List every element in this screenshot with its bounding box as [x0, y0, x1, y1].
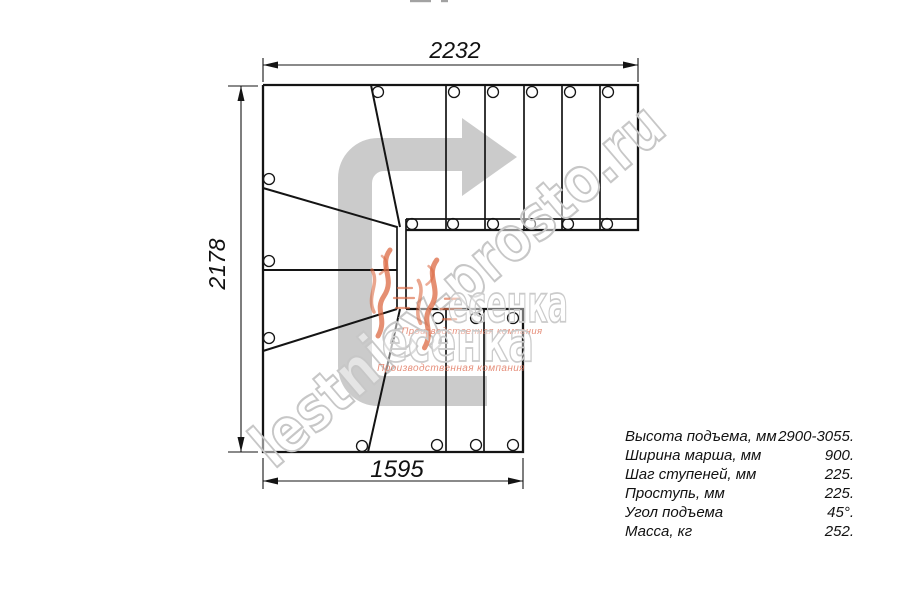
dim-arrow-left [263, 62, 278, 69]
spec-value: 45°. [827, 503, 854, 522]
spec-value: 900. [825, 446, 854, 465]
dim-arrow-right [508, 478, 523, 485]
stair-drawing-canvas: lestnicy-prosto.ru есенка Производственн… [0, 0, 900, 600]
dimension-top: 2232 [263, 37, 638, 82]
spec-row-flight-width: Ширина марша, мм 900. [625, 446, 854, 465]
logo-tagline: Производственная компания [377, 363, 525, 374]
spec-row-step-pitch: Шаг ступеней, мм 225. [625, 465, 854, 484]
spec-value: 2900-3055. [778, 427, 854, 446]
spec-value: 225. [825, 465, 854, 484]
spec-value: 225. [825, 484, 854, 503]
dim-arrow-up [238, 86, 245, 101]
spec-label: Угол подъема [625, 503, 723, 522]
dim-arrow-right [623, 62, 638, 69]
brand-logo-lower: есенка Производственная компания [377, 310, 534, 374]
spec-row-mass: Масса, кг 252. [625, 522, 854, 541]
dimension-top-label: 2232 [428, 37, 480, 63]
spec-row-rise-height: Высота подъема, мм 2900-3055. [625, 427, 854, 446]
dimension-bottom-label: 1595 [370, 456, 424, 483]
spec-row-angle: Угол подъема 45°. [625, 503, 854, 522]
top-edge-crop-marks [410, 0, 448, 2]
dim-arrow-down [238, 437, 245, 452]
dimension-left: 2178 [204, 86, 258, 452]
spec-label: Шаг ступеней, мм [625, 465, 756, 484]
spec-value: 252. [825, 522, 854, 541]
spec-label: Масса, кг [625, 522, 692, 541]
spec-label: Высота подъема, мм [625, 427, 777, 446]
spec-row-tread: Проступь, мм 225. [625, 484, 854, 503]
dim-arrow-left [263, 478, 278, 485]
spec-table: Высота подъема, мм 2900-3055. Ширина мар… [625, 427, 854, 541]
spec-label: Проступь, мм [625, 484, 725, 503]
spec-label: Ширина марша, мм [625, 446, 761, 465]
dimension-left-label: 2178 [204, 238, 230, 290]
